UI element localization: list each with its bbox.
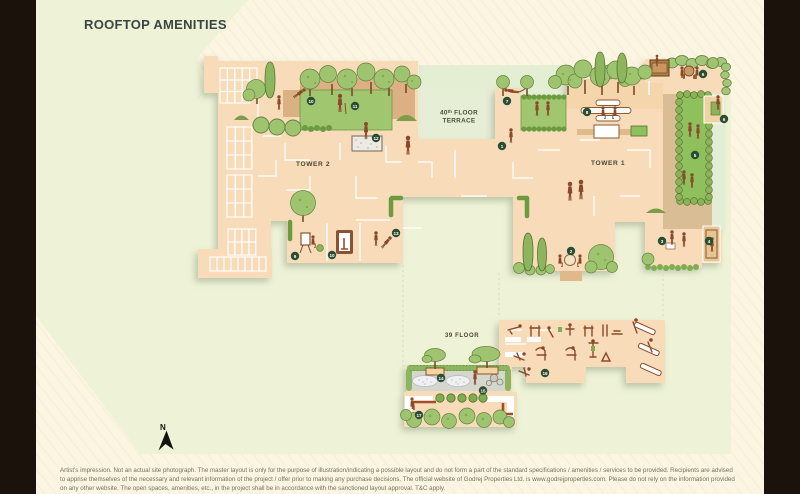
svg-text:8: 8 bbox=[586, 110, 589, 115]
svg-text:N: N bbox=[160, 423, 166, 432]
svg-text:TERRACE: TERRACE bbox=[443, 118, 476, 125]
svg-text:14: 14 bbox=[438, 376, 444, 381]
svg-text:ROOFTOP AMENITIES: ROOFTOP AMENITIES bbox=[84, 17, 227, 32]
svg-text:5: 5 bbox=[694, 153, 697, 158]
svg-text:7: 7 bbox=[506, 99, 509, 104]
svg-text:6: 6 bbox=[702, 72, 705, 77]
svg-text:Artist's impression. Not an ac: Artist's impression. Not an actual site … bbox=[60, 467, 733, 474]
svg-text:10: 10 bbox=[329, 253, 335, 258]
svg-text:9: 9 bbox=[294, 254, 297, 259]
svg-text:12: 12 bbox=[373, 136, 379, 141]
svg-text:6: 6 bbox=[723, 117, 726, 122]
svg-text:to apprise themselves of the n: to apprise themselves of the necessary a… bbox=[60, 476, 735, 483]
svg-text:4: 4 bbox=[708, 239, 711, 244]
svg-text:40ᵗʰ FLOOR: 40ᵗʰ FLOOR bbox=[440, 110, 478, 117]
svg-text:16: 16 bbox=[542, 371, 548, 376]
svg-text:1: 1 bbox=[501, 144, 504, 149]
svg-text:on any other website. The open: on any other website. The open spaces, a… bbox=[60, 485, 446, 492]
svg-text:TOWER 2: TOWER 2 bbox=[296, 161, 330, 168]
svg-text:3: 3 bbox=[661, 239, 664, 244]
svg-text:39 FLOOR: 39 FLOOR bbox=[445, 333, 479, 339]
svg-text:2: 2 bbox=[570, 249, 573, 254]
svg-text:17: 17 bbox=[416, 413, 422, 418]
svg-text:11: 11 bbox=[353, 104, 358, 109]
svg-text:TOWER 1: TOWER 1 bbox=[591, 160, 625, 167]
svg-text:10: 10 bbox=[308, 99, 314, 104]
svg-text:15: 15 bbox=[480, 388, 486, 393]
svg-text:13: 13 bbox=[393, 231, 399, 236]
